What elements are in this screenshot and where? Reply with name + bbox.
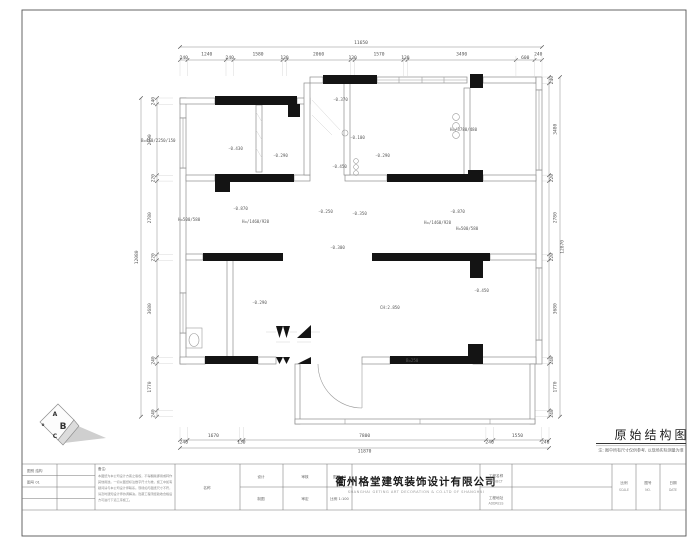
svg-text:12870: 12870	[560, 240, 566, 254]
svg-text:3680: 3680	[553, 303, 559, 314]
elev-label: -0.450	[474, 288, 489, 293]
tb-cell: 审核	[301, 474, 309, 479]
elev-label: -0.350	[352, 211, 367, 216]
tb-cell: 审定	[301, 496, 309, 501]
opening-label: B=250	[406, 358, 419, 363]
tb-cell: DATE	[669, 488, 677, 492]
svg-text:3480: 3480	[553, 124, 559, 135]
svg-text:7800: 7800	[359, 433, 370, 439]
svg-text:130: 130	[401, 55, 410, 61]
svg-text:1570: 1570	[373, 52, 384, 58]
window-spec-label: H=/1460/920	[424, 220, 452, 225]
svg-text:240: 240	[151, 409, 157, 418]
drawing-title: 原始结构图	[614, 427, 689, 442]
svg-text:130: 130	[237, 440, 246, 446]
svg-text:240: 240	[549, 76, 555, 85]
svg-text:130: 130	[280, 55, 289, 61]
logo-letter-o: o	[42, 422, 45, 427]
svg-text:220: 220	[549, 253, 555, 262]
company-name-en: SHANGHAI GETING ART DECORATION & CO.LTD …	[348, 490, 485, 494]
svg-text:240: 240	[180, 55, 189, 61]
logo-letter-b: B	[60, 422, 67, 432]
svg-text:1580: 1580	[252, 52, 263, 58]
svg-text:240: 240	[549, 409, 555, 418]
drawing-sheet: 2401240240158013020601301570130349060024…	[0, 0, 700, 546]
tb-note-line: 请及时通知设计师协调解决。隐蔽工程须经验收合格后	[98, 491, 172, 496]
svg-text:240: 240	[180, 440, 189, 446]
tb-note-line: 方可进行下道工序施工。	[98, 497, 132, 502]
tb-cell: 制图	[257, 496, 265, 501]
svg-text:240: 240	[151, 97, 157, 106]
company-name: 衢州格堂建筑装饰设计有限公司	[336, 475, 497, 488]
window-left-upper	[180, 118, 186, 168]
tb-cell: 工程地址	[489, 495, 504, 500]
tb-cell: 比例 1:100	[330, 496, 349, 501]
tb-cell: 设计	[257, 474, 265, 479]
window-left-lower	[180, 293, 186, 333]
elev-label: -0.370	[333, 97, 348, 102]
room-height-label: CH:2.850	[380, 305, 400, 310]
window-right-lower	[536, 268, 542, 340]
tb-cell: 日期	[669, 480, 677, 485]
logo-letter-c: C	[53, 433, 58, 440]
window-top-band	[377, 77, 467, 83]
tb-cell: 工程名称	[489, 473, 504, 478]
elev-label: -0.450	[332, 164, 347, 169]
drawing-title-note: 注: 图中所有尺寸仅供参考, 以现场实际测量为准	[598, 447, 683, 453]
svg-text:240: 240	[226, 55, 235, 61]
tb-cell: SCALE	[619, 488, 629, 492]
elev-label: -0.250	[318, 209, 333, 214]
elev-label: -0.290	[252, 300, 267, 305]
tb-note-line: 其他用途。一切以图纸标注数字尺寸为准，施工中如有	[98, 479, 172, 484]
elev-label: -0.870	[450, 209, 465, 214]
window-right-upper	[536, 90, 542, 170]
elev-label: -0.300	[330, 245, 345, 250]
svg-text:240: 240	[549, 356, 555, 365]
tb-cell: NO.	[645, 488, 651, 492]
tb-cell: 图号 01	[27, 480, 40, 485]
svg-text:2780: 2780	[553, 212, 559, 223]
svg-text:11870: 11870	[358, 449, 372, 455]
svg-text:240: 240	[534, 52, 543, 58]
tb-cell: 比例	[620, 480, 628, 485]
svg-text:2060: 2060	[313, 52, 324, 58]
tb-note-line: 疑问请与本公司设计师联系。现场如与图纸尺寸不符，	[98, 485, 172, 490]
svg-text:240: 240	[151, 356, 157, 365]
svg-text:11650: 11650	[354, 40, 368, 46]
svg-text:1240: 1240	[201, 52, 212, 58]
svg-text:1550: 1550	[512, 433, 523, 439]
svg-text:2780: 2780	[147, 212, 153, 223]
tb-cell: 图别 结构	[27, 468, 43, 473]
tb-cell: 图号	[644, 480, 652, 485]
svg-text:3680: 3680	[147, 303, 153, 314]
elev-label: -0.870	[233, 206, 248, 211]
svg-text:1770: 1770	[147, 381, 153, 392]
window-spec-label: H=500/580	[456, 226, 479, 231]
window-spec-label: H=500/580	[178, 217, 201, 222]
elev-label: -0.430	[228, 146, 243, 151]
tb-notes-title: 备注:	[98, 466, 106, 471]
svg-text:130: 130	[348, 55, 357, 61]
svg-text:1770: 1770	[553, 381, 559, 392]
svg-text:220: 220	[549, 174, 555, 183]
window-spec-label: B=410/2250/150	[141, 138, 176, 143]
svg-text:600: 600	[521, 55, 530, 61]
logo-letter-a: A	[53, 411, 58, 418]
tb-name-cell: 名称	[203, 485, 211, 490]
elev-label: -0.290	[375, 153, 390, 158]
tb-cell: ADDRESS	[489, 502, 504, 506]
svg-text:220: 220	[151, 253, 157, 262]
wardrobe	[256, 105, 262, 172]
svg-text:1670: 1670	[208, 433, 219, 439]
svg-text:12080: 12080	[134, 250, 140, 264]
window-spec-label: H=/1460/920	[242, 219, 270, 224]
tb-cell: PROJECT	[489, 480, 502, 484]
svg-text:220: 220	[151, 174, 157, 183]
svg-text:3490: 3490	[456, 52, 467, 58]
svg-text:240: 240	[485, 440, 494, 446]
elev-label: -0.290	[273, 153, 288, 158]
elev-label: -0.100	[350, 135, 365, 140]
tb-note-line: 本图纸为本公司设计方案之版权，不得翻版挪用或转作	[98, 473, 172, 478]
window-spec-label: H=/3780/480	[450, 127, 478, 132]
svg-text:240: 240	[541, 440, 550, 446]
